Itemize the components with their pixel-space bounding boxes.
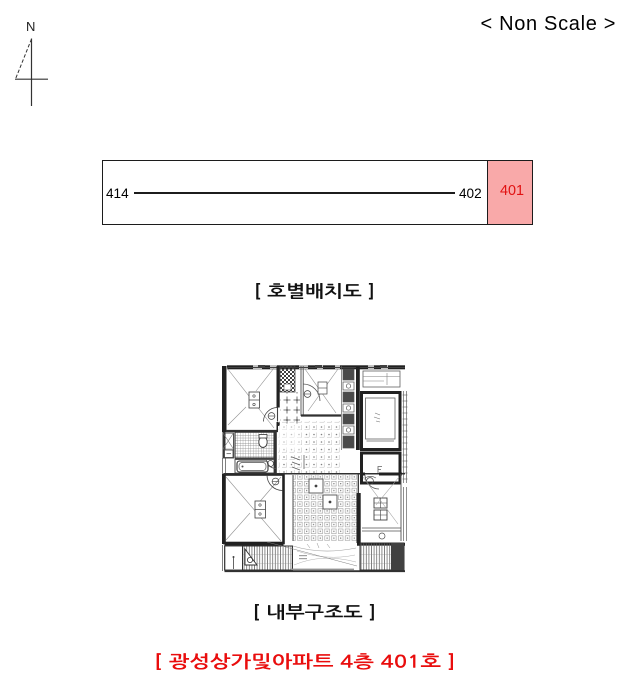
svg-text:N: N (26, 19, 35, 34)
